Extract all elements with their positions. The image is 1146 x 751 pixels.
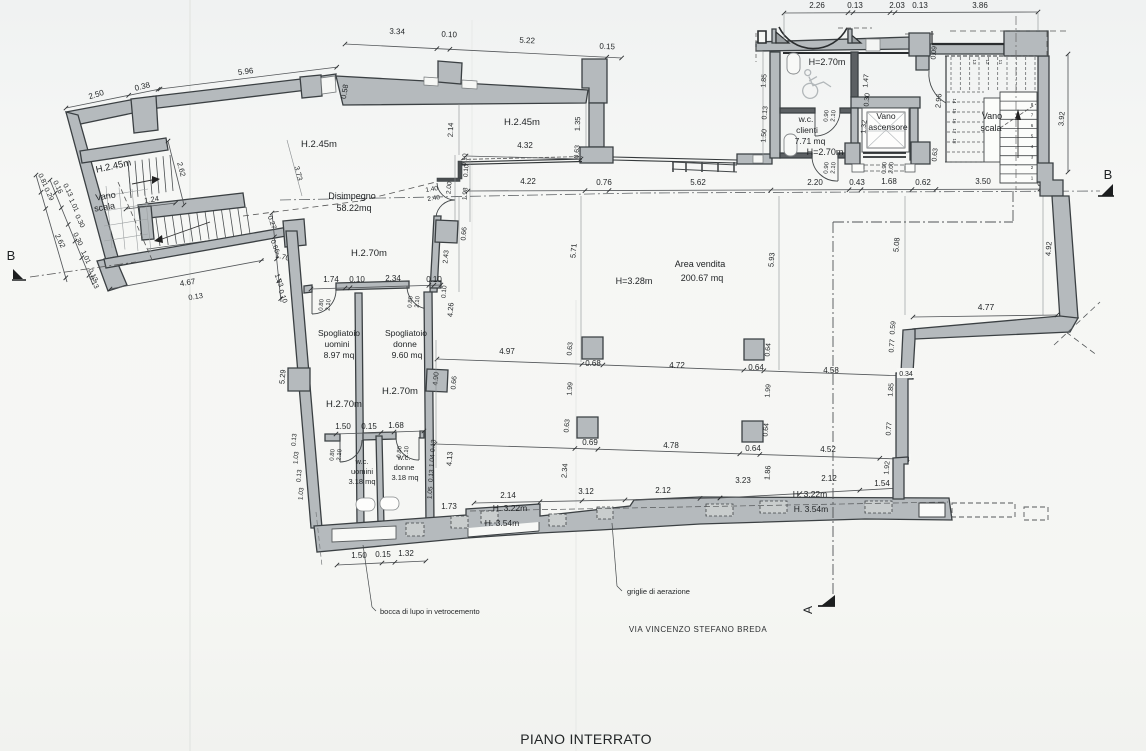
svg-text:Area vendita: Area vendita — [675, 259, 726, 269]
svg-text:4.32: 4.32 — [517, 141, 533, 150]
svg-text:4.97: 4.97 — [499, 347, 515, 356]
svg-text:H. 3.54m: H. 3.54m — [794, 504, 829, 514]
svg-text:2.14: 2.14 — [500, 491, 516, 500]
svg-text:1.86: 1.86 — [762, 465, 772, 480]
svg-text:0.13: 0.13 — [761, 106, 769, 120]
svg-text:B: B — [1104, 167, 1113, 182]
svg-text:1.99: 1.99 — [566, 382, 574, 396]
svg-text:4.13: 4.13 — [444, 451, 454, 466]
svg-text:2.10: 2.10 — [404, 445, 411, 458]
svg-text:13: 13 — [972, 59, 977, 65]
svg-text:5.08: 5.08 — [891, 237, 901, 252]
svg-text:2.03: 2.03 — [889, 1, 905, 10]
svg-text:0.80: 0.80 — [397, 445, 404, 458]
svg-text:1.74: 1.74 — [323, 275, 339, 284]
svg-text:B: B — [7, 248, 16, 263]
svg-text:0.66: 0.66 — [450, 376, 458, 390]
svg-text:11: 11 — [998, 60, 1003, 65]
svg-text:0.10: 0.10 — [462, 164, 470, 178]
svg-text:clienti: clienti — [796, 125, 818, 135]
svg-text:1.50: 1.50 — [335, 422, 351, 431]
svg-text:4.52: 4.52 — [820, 445, 836, 454]
svg-text:2.34: 2.34 — [559, 463, 569, 478]
svg-text:0.90: 0.90 — [824, 109, 831, 122]
svg-text:3.92: 3.92 — [1056, 111, 1066, 126]
svg-text:Vano: Vano — [982, 111, 1002, 121]
svg-text:0.90: 0.90 — [824, 161, 831, 174]
svg-text:0.69: 0.69 — [582, 438, 598, 447]
svg-text:0.63: 0.63 — [563, 419, 571, 433]
svg-text:3.23: 3.23 — [735, 476, 751, 485]
svg-text:5.71: 5.71 — [568, 243, 578, 258]
svg-text:2.10: 2.10 — [326, 298, 333, 311]
svg-text:H. 3.22m: H. 3.22m — [493, 503, 528, 513]
svg-text:1.05: 1.05 — [426, 486, 434, 500]
svg-text:0.80: 0.80 — [330, 448, 337, 461]
svg-text:uomini: uomini — [351, 467, 373, 476]
svg-text:2.26: 2.26 — [809, 1, 825, 10]
svg-text:0.63: 0.63 — [931, 148, 939, 162]
svg-text:200.67 mq: 200.67 mq — [681, 273, 724, 283]
svg-text:4.77: 4.77 — [978, 302, 995, 312]
svg-text:4.26: 4.26 — [445, 302, 455, 317]
svg-text:H.2.70m: H.2.70m — [351, 248, 387, 259]
svg-text:0.43: 0.43 — [849, 178, 865, 187]
svg-text:7.71 mq: 7.71 mq — [795, 136, 826, 146]
svg-text:H=2.70m: H=2.70m — [807, 147, 844, 157]
svg-text:0.64: 0.64 — [748, 363, 764, 372]
svg-text:1.73: 1.73 — [441, 502, 457, 511]
svg-text:w.c.: w.c. — [355, 457, 369, 466]
svg-text:1.04: 1.04 — [428, 454, 436, 468]
svg-text:H.2.70m: H.2.70m — [382, 386, 418, 397]
svg-text:1.54: 1.54 — [874, 479, 890, 488]
svg-text:1.68: 1.68 — [881, 177, 897, 186]
svg-text:0.68: 0.68 — [585, 359, 601, 368]
svg-text:2.34: 2.34 — [385, 274, 401, 283]
svg-text:0.34: 0.34 — [899, 371, 913, 378]
svg-text:2.00: 2.00 — [445, 181, 453, 195]
svg-text:4.72: 4.72 — [669, 361, 685, 370]
svg-text:H. 3.54m: H. 3.54m — [485, 518, 520, 528]
svg-text:0.13: 0.13 — [847, 1, 863, 10]
svg-text:PIANO INTERRATO: PIANO INTERRATO — [520, 731, 652, 747]
svg-text:0.15: 0.15 — [375, 550, 391, 559]
svg-text:0.10: 0.10 — [441, 30, 458, 40]
svg-text:0.63: 0.63 — [573, 145, 581, 159]
svg-text:0.10: 0.10 — [349, 275, 365, 284]
svg-text:0.10: 0.10 — [440, 285, 448, 299]
svg-text:2.43: 2.43 — [442, 250, 450, 264]
svg-text:16: 16 — [952, 118, 957, 124]
svg-text:2.14: 2.14 — [446, 122, 456, 137]
svg-text:ascensore: ascensore — [868, 122, 907, 132]
svg-text:5.93: 5.93 — [766, 252, 776, 267]
svg-text:0.76: 0.76 — [596, 178, 612, 187]
svg-text:12: 12 — [985, 59, 990, 65]
svg-text:3.18 mq: 3.18 mq — [391, 473, 418, 482]
svg-text:0.90: 0.90 — [882, 161, 889, 174]
svg-text:0.13: 0.13 — [912, 1, 928, 10]
svg-text:Disimpegno: Disimpegno — [328, 191, 376, 201]
svg-text:2.10: 2.10 — [831, 161, 838, 174]
svg-text:2.20: 2.20 — [807, 178, 823, 187]
svg-text:H.2.70m: H.2.70m — [326, 399, 362, 410]
svg-text:18: 18 — [952, 138, 957, 144]
svg-text:3.86: 3.86 — [972, 1, 988, 10]
svg-text:2.12: 2.12 — [655, 486, 671, 495]
svg-text:Spogliatoio: Spogliatoio — [385, 328, 427, 338]
svg-text:1.85: 1.85 — [887, 383, 895, 397]
svg-text:1.68: 1.68 — [388, 421, 404, 430]
svg-text:H=2.70m: H=2.70m — [809, 57, 846, 67]
svg-text:Vano: Vano — [876, 111, 895, 121]
svg-text:1.35: 1.35 — [573, 116, 583, 131]
svg-text:2.10: 2.10 — [415, 295, 422, 308]
svg-text:15: 15 — [952, 108, 957, 114]
svg-text:4.78: 4.78 — [663, 441, 679, 450]
svg-text:4.92: 4.92 — [1043, 241, 1053, 256]
svg-text:0.15: 0.15 — [361, 422, 377, 431]
svg-text:donne: donne — [393, 339, 417, 349]
svg-text:3.18 mq: 3.18 mq — [348, 477, 375, 486]
svg-text:0.77: 0.77 — [885, 422, 893, 436]
svg-text:0.63: 0.63 — [566, 342, 574, 356]
svg-text:0.30: 0.30 — [863, 93, 871, 107]
svg-text:4.90: 4.90 — [432, 372, 440, 386]
svg-text:VIA VINCENZO STEFANO BREDA: VIA VINCENZO STEFANO BREDA — [629, 625, 768, 634]
svg-text:0.13: 0.13 — [295, 469, 303, 483]
svg-text:0.13: 0.13 — [427, 469, 435, 483]
svg-text:5.62: 5.62 — [690, 178, 706, 187]
svg-text:1.98: 1.98 — [461, 187, 469, 201]
svg-text:58.22mq: 58.22mq — [336, 203, 371, 213]
svg-text:3.12: 3.12 — [578, 487, 594, 496]
svg-text:5.22: 5.22 — [519, 36, 536, 46]
svg-text:4.58: 4.58 — [823, 366, 839, 375]
svg-text:3.34: 3.34 — [389, 27, 406, 37]
svg-text:2.00: 2.00 — [889, 161, 896, 174]
svg-text:3.50: 3.50 — [975, 177, 991, 186]
svg-text:uomini: uomini — [324, 339, 349, 349]
svg-text:A: A — [801, 606, 815, 614]
svg-text:0.66: 0.66 — [460, 227, 468, 241]
svg-text:scala: scala — [980, 123, 1001, 133]
svg-text:w.c.: w.c. — [798, 114, 814, 124]
svg-text:4.22: 4.22 — [520, 177, 536, 186]
svg-text:H. 3.22m: H. 3.22m — [793, 489, 828, 499]
svg-text:9.60 mq: 9.60 mq — [392, 350, 423, 360]
svg-text:H.2.45m: H.2.45m — [301, 139, 337, 150]
svg-text:0.64: 0.64 — [762, 423, 770, 437]
svg-text:5.29: 5.29 — [277, 369, 287, 384]
svg-text:1.32: 1.32 — [860, 120, 868, 134]
svg-text:H=3.28m: H=3.28m — [616, 276, 653, 286]
svg-text:2.12: 2.12 — [821, 474, 837, 483]
svg-text:0.62: 0.62 — [915, 178, 931, 187]
svg-text:0.09: 0.09 — [930, 46, 938, 60]
svg-text:14: 14 — [952, 98, 957, 104]
svg-text:1.99: 1.99 — [764, 384, 772, 398]
svg-text:2.10: 2.10 — [831, 109, 838, 122]
svg-text:Spogliatoio: Spogliatoio — [318, 328, 360, 338]
svg-text:0.15: 0.15 — [599, 42, 616, 52]
svg-text:0.77: 0.77 — [888, 339, 896, 353]
svg-text:1.50: 1.50 — [760, 129, 768, 143]
svg-text:1.03: 1.03 — [297, 487, 305, 501]
svg-text:donne: donne — [394, 463, 415, 472]
svg-text:bocca di lupo in vetrocemento: bocca di lupo in vetrocemento — [380, 607, 480, 616]
svg-text:17: 17 — [952, 128, 957, 134]
svg-text:1.85: 1.85 — [760, 74, 768, 88]
svg-text:0.64: 0.64 — [745, 444, 761, 453]
svg-text:0.10: 0.10 — [426, 275, 442, 284]
svg-text:0.80: 0.80 — [319, 298, 326, 311]
svg-text:0.13: 0.13 — [290, 433, 298, 447]
svg-text:1.92: 1.92 — [883, 461, 891, 475]
svg-text:griglie di aerazione: griglie di aerazione — [627, 587, 690, 596]
svg-text:1.03: 1.03 — [292, 451, 300, 465]
svg-text:1.47: 1.47 — [862, 74, 870, 88]
svg-text:0.80: 0.80 — [408, 295, 415, 308]
svg-text:8.97 mq: 8.97 mq — [324, 350, 355, 360]
svg-text:0.64: 0.64 — [764, 343, 772, 357]
svg-text:1.32: 1.32 — [398, 549, 414, 558]
svg-text:H.2.45m: H.2.45m — [504, 117, 540, 128]
svg-text:2.10: 2.10 — [337, 448, 344, 461]
svg-text:0.59: 0.59 — [889, 321, 897, 335]
